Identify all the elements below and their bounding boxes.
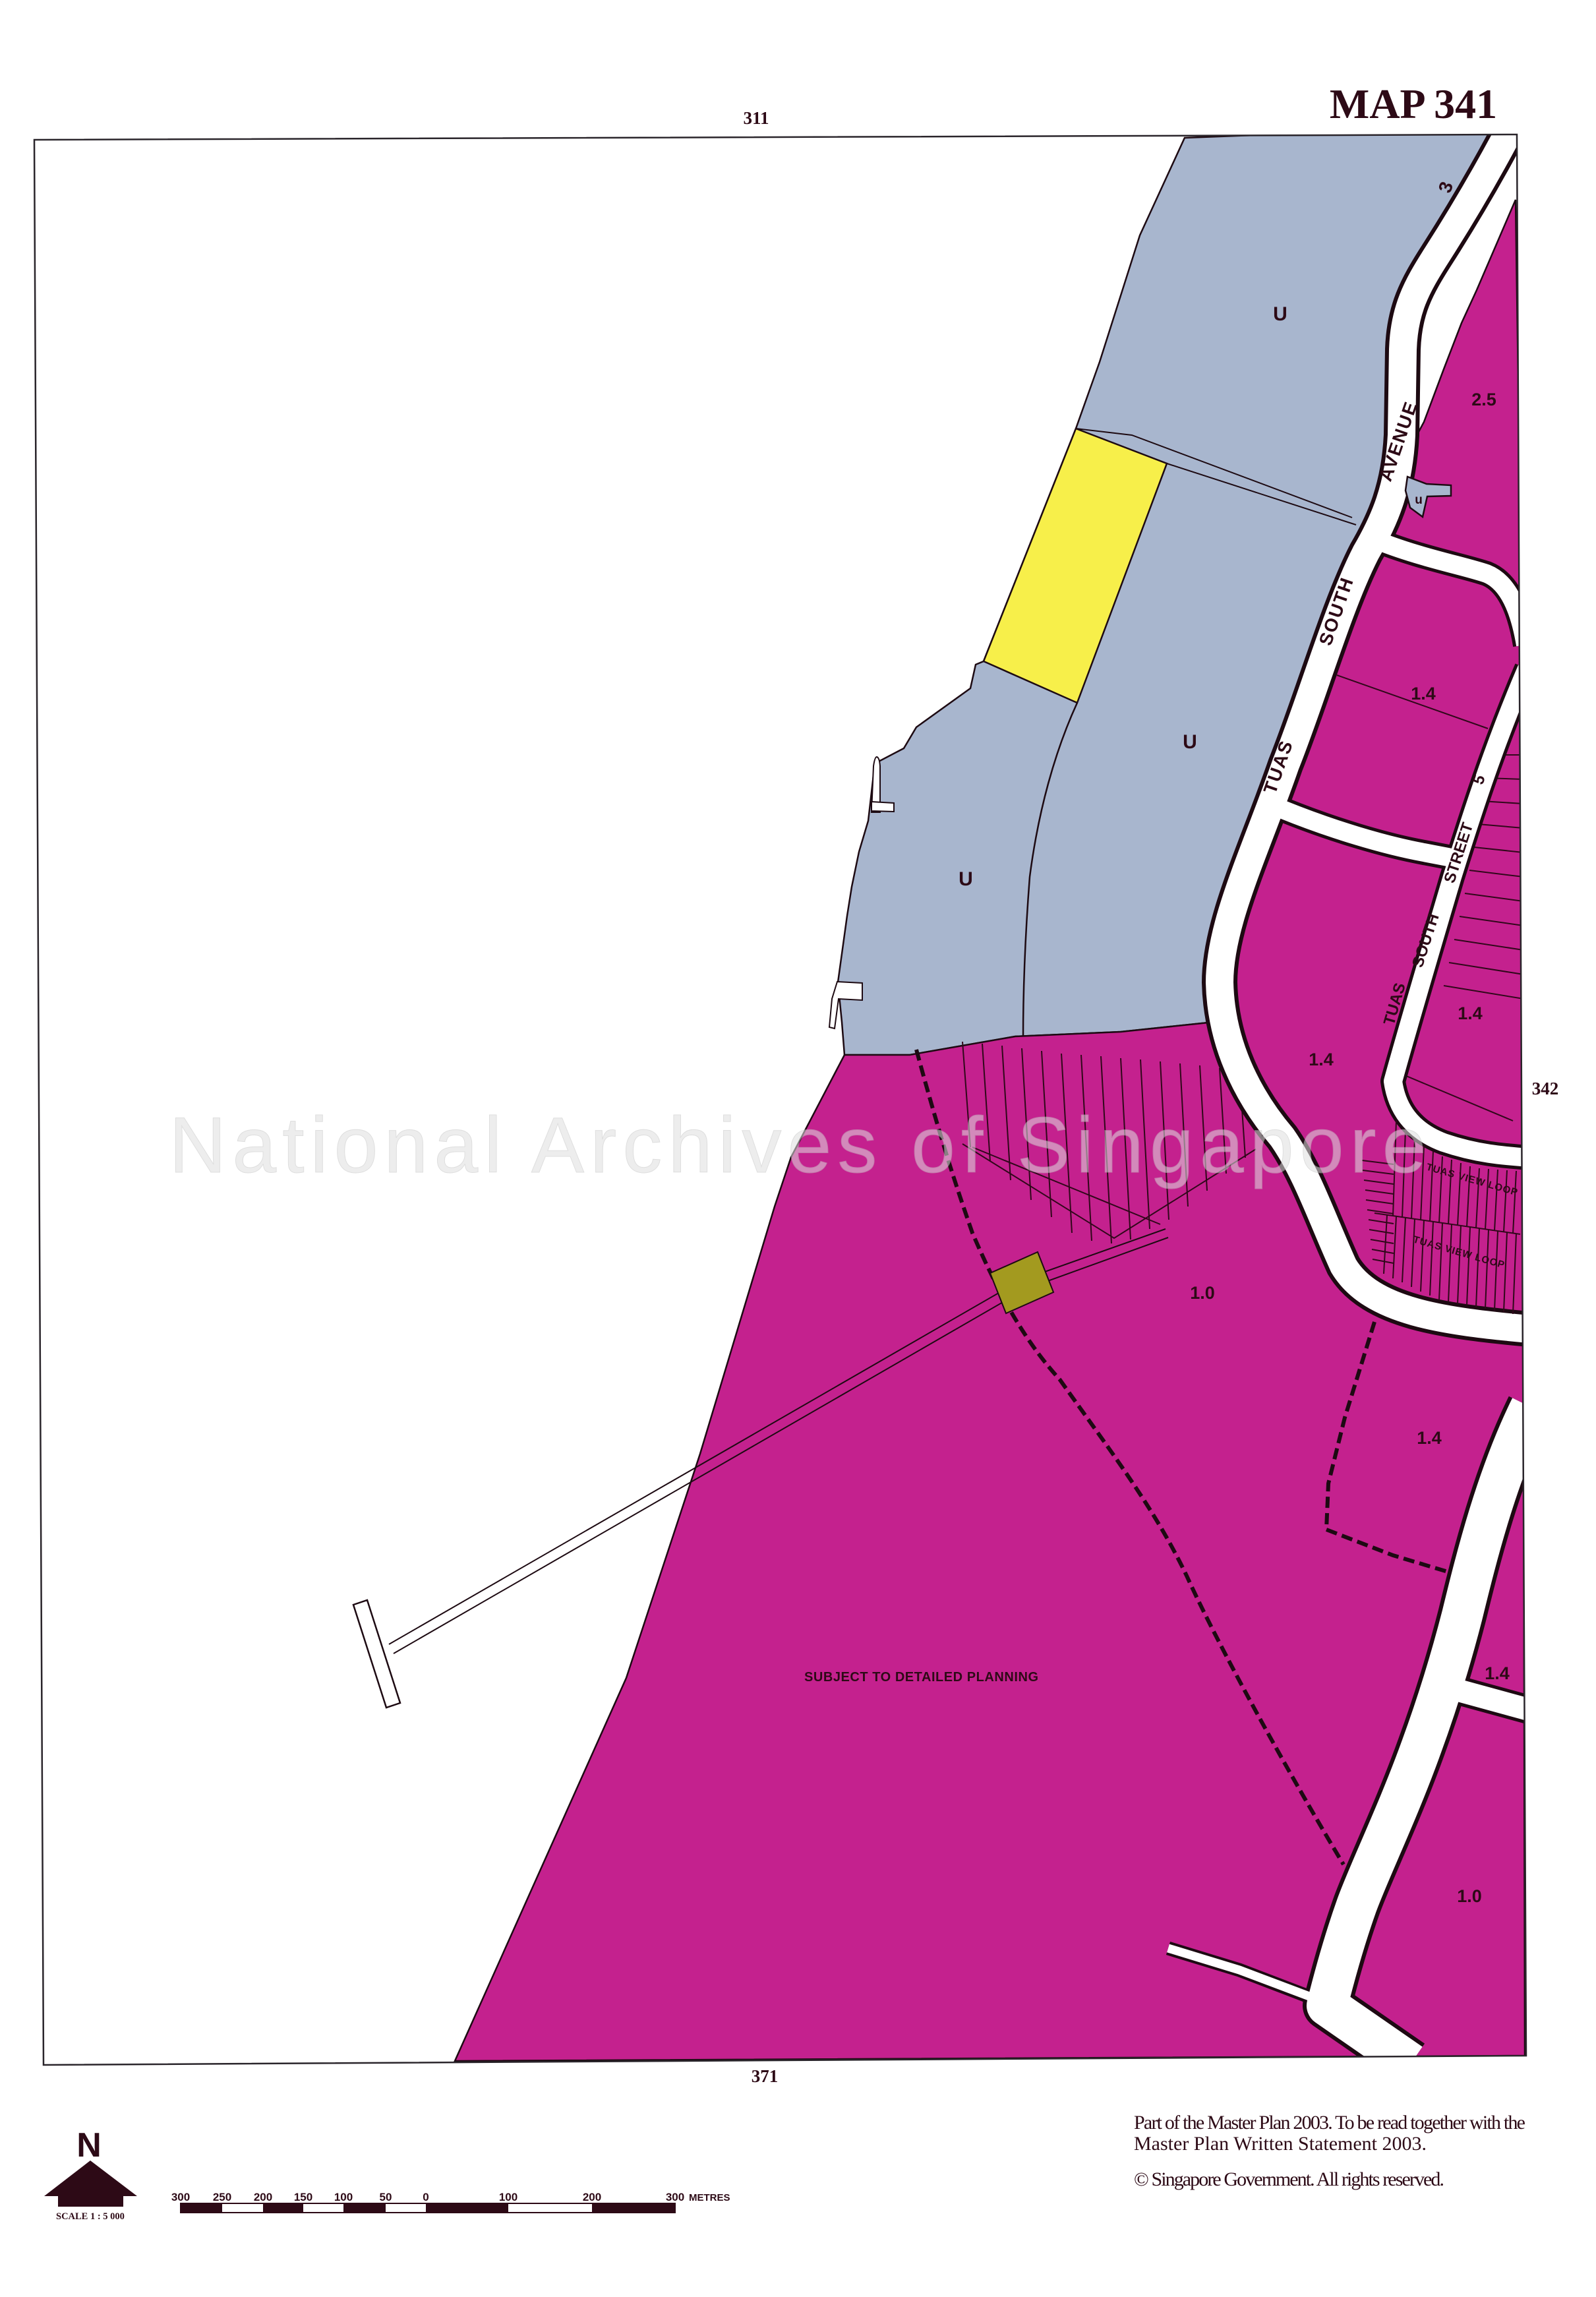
svg-text:1.0: 1.0 [1457, 1886, 1482, 1906]
svg-text:METRES: METRES [689, 2192, 730, 2203]
svg-text:1.0: 1.0 [1190, 1283, 1215, 1303]
svg-text:1.4: 1.4 [1411, 684, 1436, 703]
svg-text:© Singapore Government. All: © Singapore Government. All rights reser… [1134, 2168, 1444, 2190]
svg-text:Part of the Master Plan 2003.: Part of the Master Plan 2003. To be read… [1134, 2112, 1525, 2133]
svg-text:342: 342 [1532, 1079, 1559, 1098]
svg-text:1.4: 1.4 [1458, 1003, 1483, 1023]
svg-text:150: 150 [294, 2191, 312, 2203]
svg-text:Master Plan Written Statement: Master Plan Written Statement 2003. [1134, 2133, 1427, 2155]
svg-text:200: 200 [254, 2191, 272, 2203]
svg-text:311: 311 [743, 108, 769, 128]
svg-text:100: 100 [334, 2191, 353, 2203]
svg-text:0: 0 [423, 2191, 429, 2203]
svg-text:SUBJECT TO DETAILED PLANNING: SUBJECT TO DETAILED PLANNING [804, 1670, 1039, 1685]
svg-text:U: U [1183, 731, 1197, 753]
svg-text:U: U [1273, 303, 1287, 325]
svg-text:N: N [76, 2126, 102, 2164]
svg-text:1.4: 1.4 [1485, 1663, 1510, 1683]
svg-text:371: 371 [752, 2066, 779, 2086]
svg-text:SCALE 1 : 5 000: SCALE 1 : 5 000 [56, 2211, 125, 2222]
svg-text:1.4: 1.4 [1309, 1050, 1334, 1069]
svg-text:MAP 341: MAP 341 [1330, 80, 1497, 127]
svg-text:1.4: 1.4 [1417, 1428, 1442, 1448]
svg-text:U: U [959, 868, 973, 890]
svg-text:300: 300 [171, 2191, 190, 2203]
svg-text:2.5: 2.5 [1471, 390, 1496, 409]
svg-text:National Archives of Singapore: National Archives of Singapore [169, 1101, 1427, 1189]
svg-text:50: 50 [380, 2191, 392, 2203]
svg-text:250: 250 [213, 2191, 231, 2203]
svg-text:200: 200 [583, 2191, 601, 2203]
svg-text:300: 300 [666, 2191, 684, 2203]
svg-text:u: u [1415, 493, 1423, 507]
svg-text:100: 100 [499, 2191, 517, 2203]
